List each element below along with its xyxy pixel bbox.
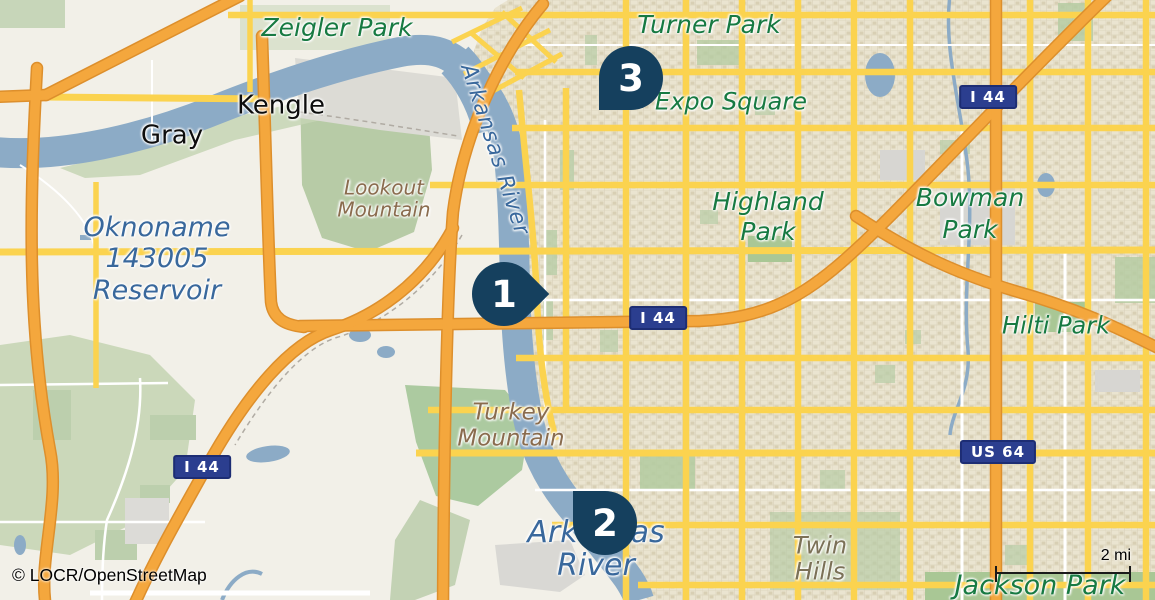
highway-shield-us64: US 64	[960, 440, 1036, 464]
label-text: Hills	[793, 559, 847, 585]
highway-shield-i44-central: I 44	[629, 306, 687, 330]
label-hilti-park: Hilti Park	[1002, 313, 1110, 340]
marker-number: 2	[573, 491, 637, 555]
label-text: Park	[712, 217, 823, 247]
label-text: Expo Square	[655, 88, 807, 116]
map-marker-2[interactable]: 2	[573, 491, 637, 555]
highway-shield-i44-northeast: I 44	[959, 85, 1017, 109]
label-text: Oknoname	[83, 212, 230, 243]
marker-number: 1	[472, 262, 536, 326]
label-text: Turkey	[457, 400, 564, 426]
label-text: Jackson Park	[955, 570, 1126, 600]
label-text: 143005	[83, 243, 230, 274]
label-text: Turner Park	[637, 10, 780, 39]
label-highland-park: Highland Park	[712, 187, 823, 247]
label-bowman-park: Bowman Park	[916, 182, 1024, 246]
label-text: Kengle	[237, 90, 325, 120]
label-kengle: Kengle	[237, 91, 325, 120]
label-expo-square: Expo Square	[655, 89, 807, 116]
label-text: Mountain	[337, 199, 430, 221]
scale-tick-right	[1129, 566, 1131, 582]
scale-bar	[996, 572, 1131, 574]
marker-number: 3	[599, 46, 663, 110]
scale-tick-left	[995, 566, 997, 582]
label-turner-park: Turner Park	[637, 11, 780, 39]
shield-text: I 44	[970, 88, 1006, 106]
map-attribution: © LOCR/OpenStreetMap	[12, 565, 207, 586]
label-oknoname-reservoir: Oknoname 143005 Reservoir	[83, 212, 230, 306]
map-marker-1[interactable]: 1	[459, 249, 550, 340]
label-text: Gray	[141, 120, 203, 150]
label-gray: Gray	[141, 121, 203, 150]
map-marker-3[interactable]: 3	[599, 46, 663, 110]
label-text: Hilti Park	[1002, 312, 1110, 340]
map-viewport[interactable]: Zeigler Park Turner Park Expo Square Ken…	[0, 0, 1155, 600]
shield-text: I 44	[640, 309, 676, 327]
label-text: Lookout	[337, 177, 430, 199]
label-lookout-mountain: Lookout Mountain	[337, 177, 430, 222]
label-turkey-mountain: Turkey Mountain	[457, 400, 564, 453]
label-zeigler-park: Zeigler Park	[261, 14, 412, 42]
label-twin-hills: Twin Hills	[793, 533, 847, 586]
highway-shield-i44-southwest: I 44	[173, 455, 231, 479]
label-text: Twin	[793, 533, 847, 559]
label-jackson-park: Jackson Park	[955, 571, 1126, 600]
label-text: Mountain	[457, 426, 564, 452]
scale-label: 2 mi	[996, 547, 1131, 565]
shield-text: I 44	[184, 458, 220, 476]
label-text: Highland	[712, 187, 823, 217]
shield-text: US 64	[971, 443, 1025, 461]
label-text: Bowman	[916, 182, 1024, 214]
label-text: Zeigler Park	[261, 13, 412, 42]
label-text: Park	[916, 214, 1024, 246]
label-text: Reservoir	[83, 275, 230, 306]
